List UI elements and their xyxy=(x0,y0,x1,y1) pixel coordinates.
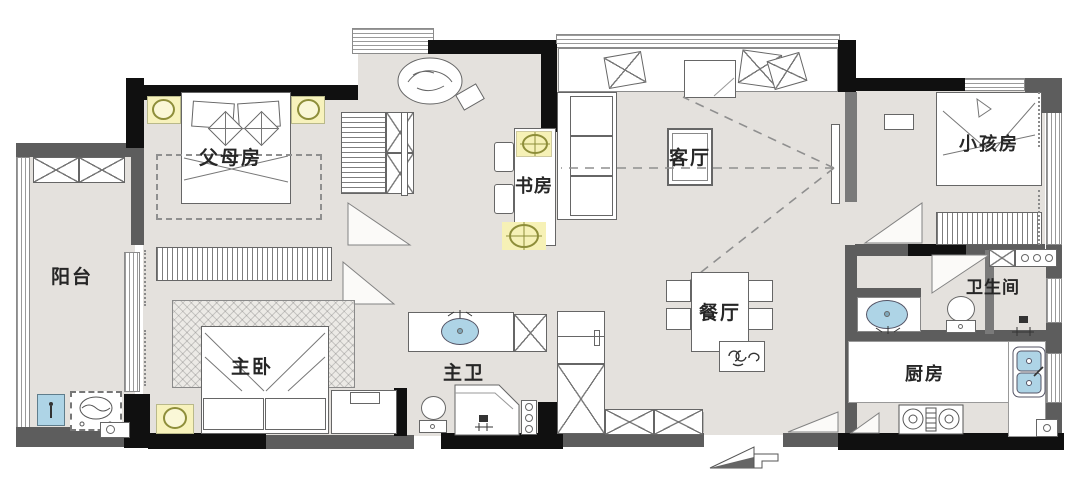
dining-chair-icon xyxy=(666,280,691,302)
bed-pillow-icon xyxy=(203,398,264,430)
lamp-icon xyxy=(163,407,187,429)
shelf-dot xyxy=(525,414,533,422)
shelf-dot xyxy=(525,425,533,433)
room-label-kids-room: 小孩房 xyxy=(959,130,1019,156)
cabinet-handle xyxy=(594,330,600,346)
balcony-side-window xyxy=(16,157,30,429)
basin-drain xyxy=(457,328,463,334)
wall xyxy=(148,433,266,449)
study-cabinet-icon xyxy=(386,153,414,194)
wall-shelf-icon xyxy=(884,114,914,130)
room-label-bathroom: 卫生间 xyxy=(966,273,1020,298)
dining-chair-icon xyxy=(748,308,773,330)
room-label-study: 书房 xyxy=(515,172,553,198)
sink-faucet-icon xyxy=(37,394,65,426)
dining-chair-icon xyxy=(748,280,773,302)
step-box xyxy=(100,422,130,438)
lamp-icon xyxy=(152,99,175,120)
balcony-storage-icon xyxy=(79,157,125,183)
wall xyxy=(131,147,144,245)
lamp-icon xyxy=(297,99,320,120)
entry-door-swings xyxy=(678,408,883,436)
stove-icon xyxy=(898,404,964,435)
entry-cabinet-icon xyxy=(557,311,605,364)
toilet-button xyxy=(958,324,963,329)
kitchen-window xyxy=(1046,353,1062,403)
bath-cabinet-icon xyxy=(514,314,547,352)
ceiling-lamp-icon xyxy=(506,222,542,250)
tv-wall xyxy=(845,92,857,202)
study-wardrobe-icon xyxy=(341,112,386,194)
floor-plan: 阳台 父母房 主卧 书房 客厅 餐厅 主卫 小孩房 卫生间 厨房 xyxy=(0,0,1080,485)
toilet-button xyxy=(430,424,435,429)
north-arrow-icon xyxy=(706,442,784,480)
entry-low-storage-icon xyxy=(605,409,654,435)
bath-window xyxy=(1046,278,1062,323)
curtain-icon xyxy=(144,330,146,386)
decor-plate-pattern xyxy=(721,343,763,370)
shelf-dot xyxy=(525,403,533,411)
kids-top-window xyxy=(963,78,1025,91)
basin-drain xyxy=(884,311,890,317)
shelf-dot xyxy=(1021,254,1029,262)
toilet-bowl-icon xyxy=(421,396,446,420)
door-leaf xyxy=(401,112,408,196)
bed-pillow-icon xyxy=(265,398,326,430)
entry-tall-storage-icon xyxy=(557,364,605,434)
faucet-icon xyxy=(444,308,476,320)
shower-fixture-icon xyxy=(1008,314,1038,336)
wall xyxy=(266,435,414,449)
curtain-icon xyxy=(1038,190,1040,245)
drain-icon xyxy=(106,425,115,434)
room-label-kitchen: 厨房 xyxy=(905,360,945,386)
kids-side-window xyxy=(1046,112,1062,245)
vanity-shelf-icon xyxy=(350,392,380,404)
chair-icon xyxy=(494,142,514,172)
room-label-dining-area: 餐厅 xyxy=(699,298,741,325)
plant-icon xyxy=(396,56,466,108)
balcony-storage-icon xyxy=(33,157,79,183)
curtain-icon xyxy=(1038,92,1040,147)
hall-door-swings xyxy=(340,198,415,308)
wall xyxy=(855,78,965,91)
room-label-master-bedroom: 主卧 xyxy=(231,352,273,379)
kids-wardrobe-icon xyxy=(936,212,1042,245)
kids-door-swing xyxy=(860,198,926,248)
kitchen-sink-icon xyxy=(1012,346,1046,398)
wall xyxy=(428,40,556,54)
room-label-master-bath: 主卫 xyxy=(443,358,485,385)
wall xyxy=(16,143,144,157)
corner-dot xyxy=(1043,424,1051,432)
room-label-parents-room: 父母房 xyxy=(199,143,262,170)
balcony-sliding-door xyxy=(124,252,140,392)
toilet-bowl-icon xyxy=(947,296,975,322)
wall xyxy=(857,288,921,297)
ceiling-lamp-icon xyxy=(520,132,550,156)
shelf-dot xyxy=(1045,254,1053,262)
entry-low-storage-icon xyxy=(654,409,703,435)
study-cabinet-icon xyxy=(386,112,414,153)
master-wardrobe-icon xyxy=(156,247,332,281)
study-bay-window xyxy=(352,28,434,54)
dining-chair-icon xyxy=(666,308,691,330)
bath-cabinet-icon xyxy=(989,249,1015,267)
wall xyxy=(1046,323,1062,353)
shelf-dot xyxy=(1033,254,1041,262)
wall xyxy=(124,394,150,448)
room-label-balcony: 阳台 xyxy=(51,262,93,289)
chair-icon xyxy=(494,184,514,214)
faucet-icon xyxy=(872,324,904,336)
wall xyxy=(538,402,558,436)
room-label-living-room: 客厅 xyxy=(669,143,711,170)
curtain-icon xyxy=(144,250,146,306)
